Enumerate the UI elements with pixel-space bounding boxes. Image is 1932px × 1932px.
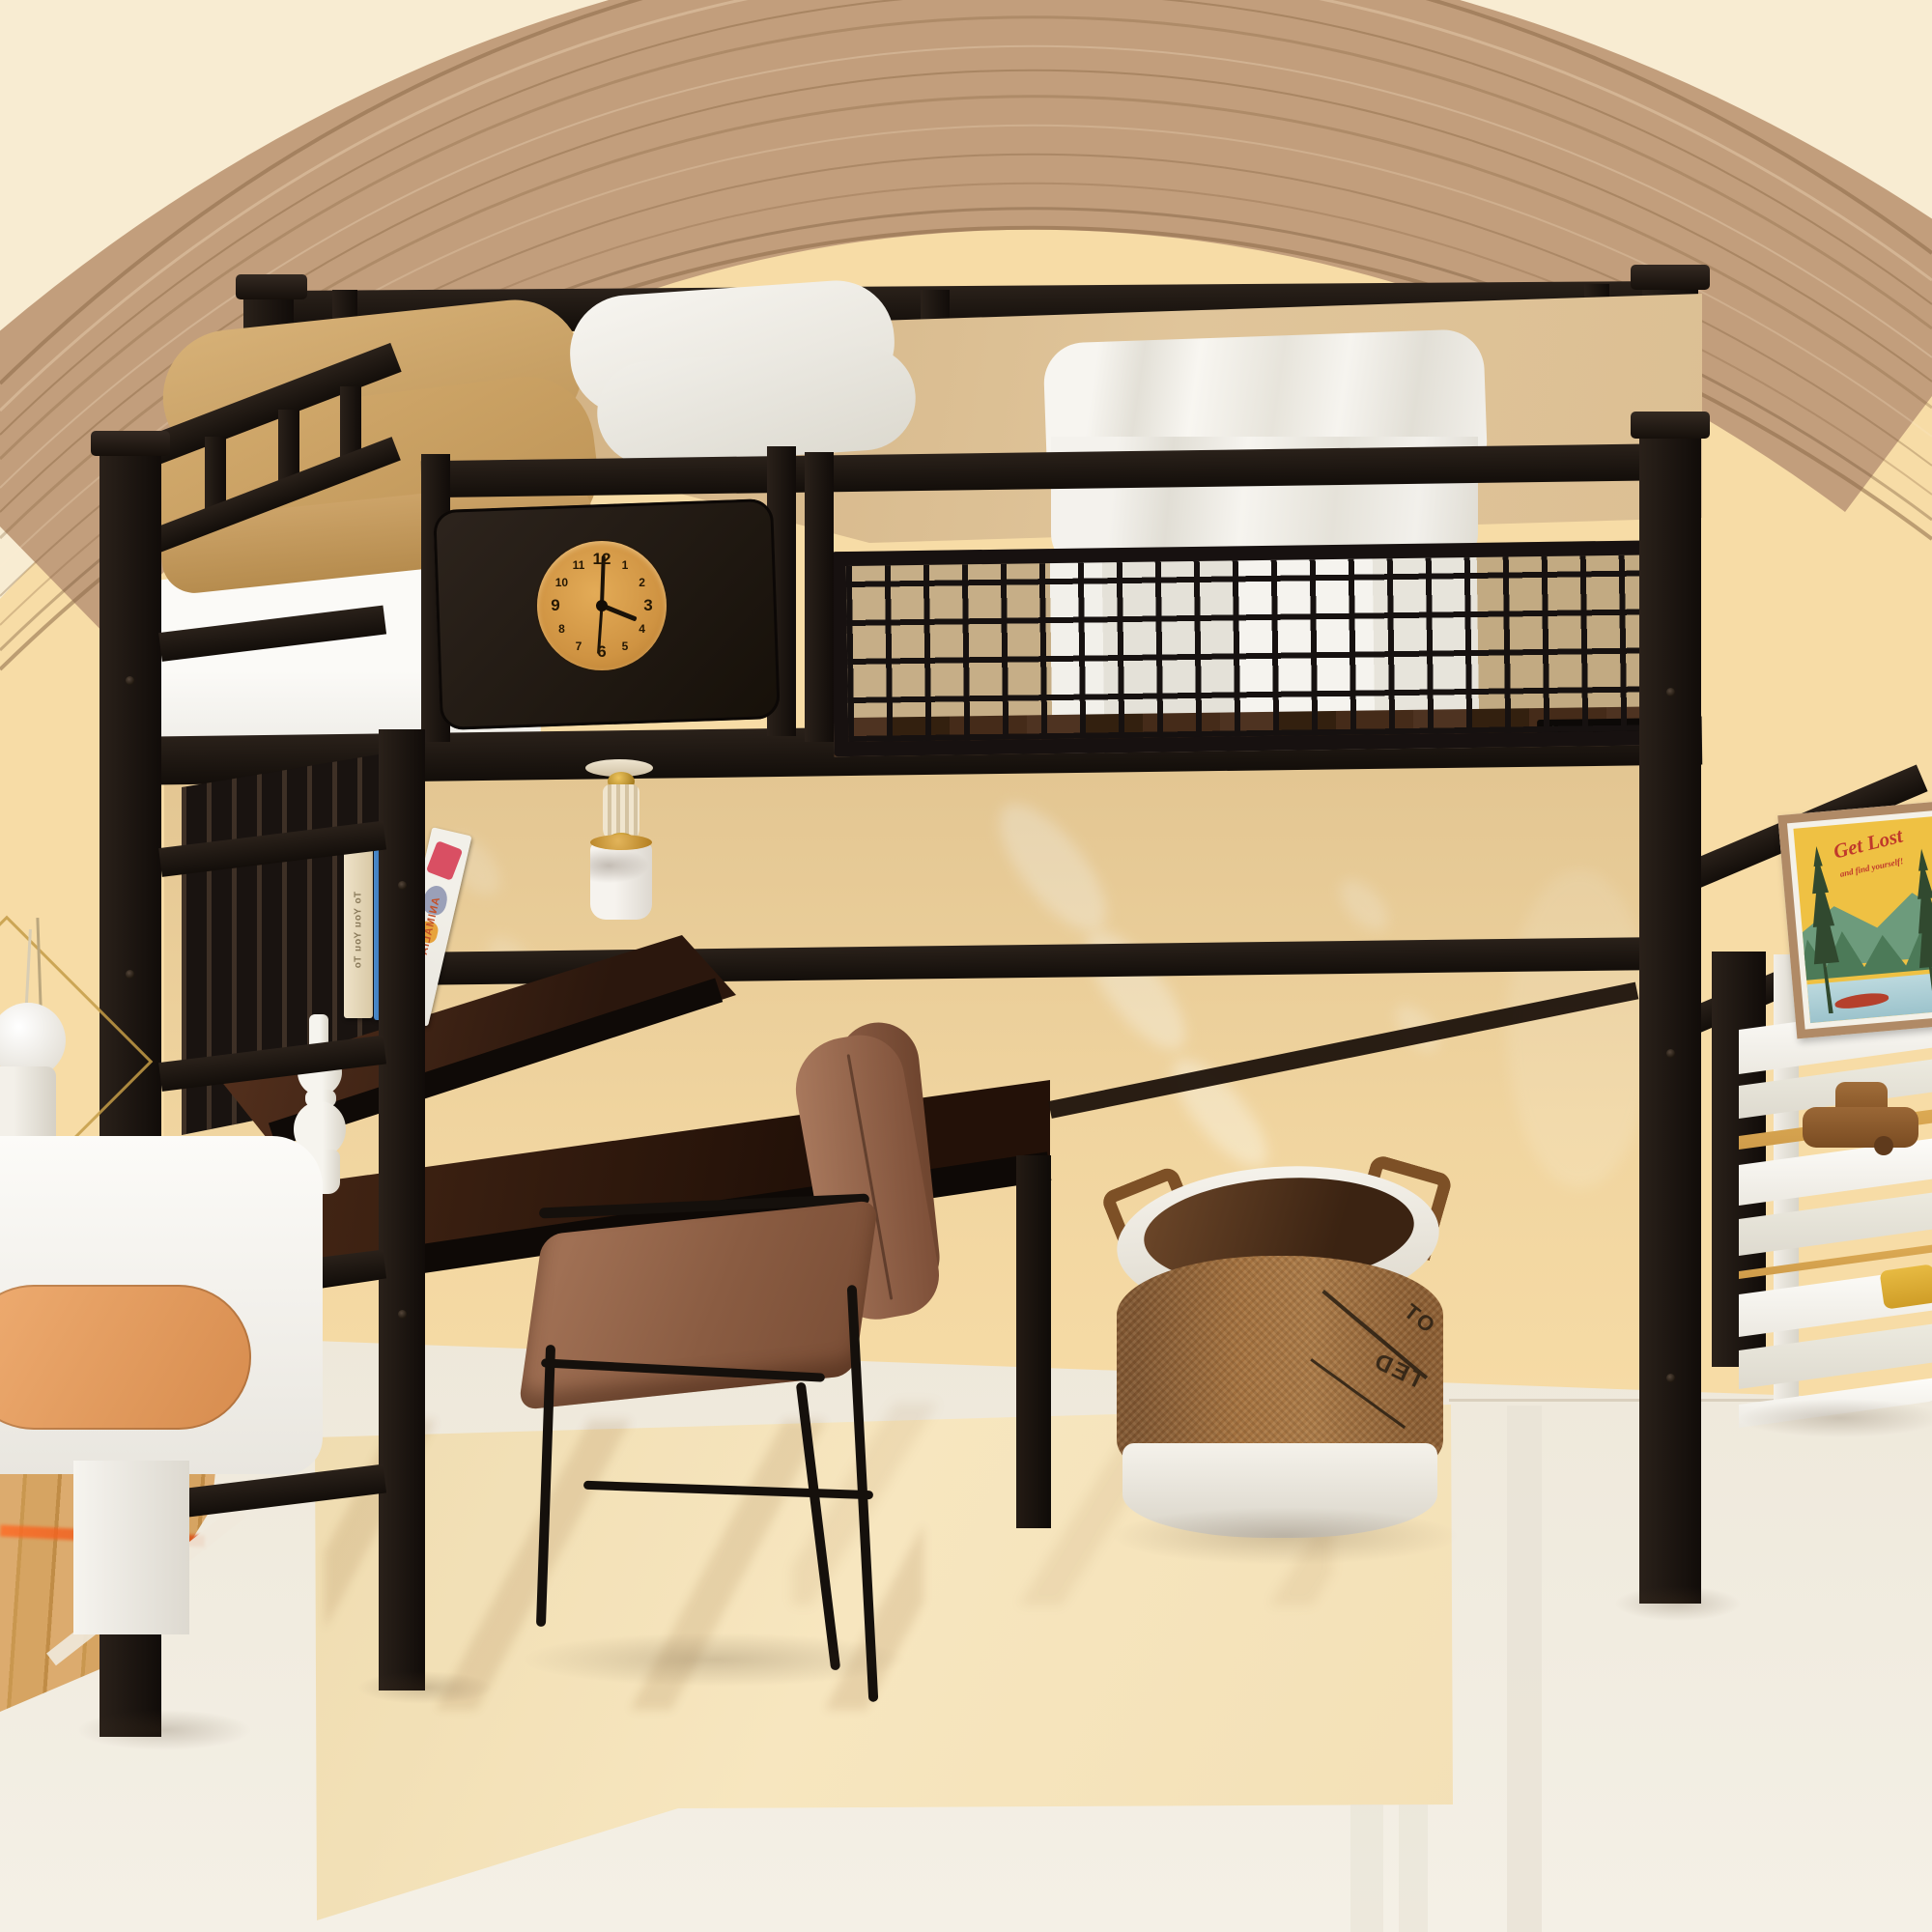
bolt [398, 1310, 407, 1319]
bolt [1666, 1049, 1675, 1058]
front-right-post [1639, 423, 1701, 1604]
clock-numeral: 10 [555, 576, 568, 589]
toy-car-wheel [1874, 1136, 1893, 1155]
post-cap [1631, 265, 1710, 290]
post-cap [91, 431, 170, 456]
left-end-slat [340, 386, 361, 458]
stamp-text: OT [1398, 1297, 1439, 1338]
clock-numeral: 2 [639, 576, 645, 589]
wire-mesh [832, 540, 1696, 756]
clock-numeral: 6 [597, 642, 606, 662]
shadow [522, 1633, 908, 1687]
yellow-toy [1879, 1264, 1932, 1309]
book: To You You To [344, 842, 373, 1018]
shadow [1615, 1586, 1741, 1621]
floor-stripe [1350, 1804, 1383, 1932]
framed-poster: Get Lost and find yourself! [1777, 801, 1932, 1039]
bolt [1666, 1374, 1675, 1382]
post-cap [236, 274, 307, 299]
bolt [126, 676, 134, 685]
mesh-guardrail [832, 540, 1696, 756]
desk-leg [1016, 1155, 1051, 1528]
pendant-lamp-gold-top [590, 835, 652, 850]
book-spine-title: To You You To [344, 842, 373, 1018]
shadow [77, 1710, 251, 1750]
clock-numeral: 8 [558, 622, 565, 636]
shadow [1111, 1507, 1459, 1565]
clock-numeral: 7 [576, 639, 582, 653]
clock-numeral: 9 [551, 596, 559, 615]
floor-stripe [1399, 1804, 1428, 1932]
left-end-slat [205, 437, 226, 510]
bolt [1666, 688, 1675, 696]
pendant-lamp-marble-body [590, 842, 652, 920]
white-pillow [594, 343, 920, 469]
clock-numeral: 12 [593, 550, 611, 569]
poster-art: Get Lost and find yourself! [1793, 816, 1932, 1023]
clock-numeral: 11 [573, 558, 585, 572]
clock-numeral: 1 [622, 558, 629, 572]
nightstand-drawer[interactable] [0, 1285, 251, 1430]
clock-hub [596, 600, 608, 611]
toy-car[interactable] [1803, 1107, 1918, 1148]
guardrail-post [805, 452, 834, 742]
wall-clock: 121234567891011 [537, 541, 667, 670]
nightstand-leg [73, 1461, 189, 1634]
clock-numeral: 5 [622, 639, 629, 653]
floor-stripe [1507, 1406, 1542, 1932]
bolt [126, 970, 134, 979]
ladder-right-rail [379, 729, 425, 1690]
room-scene: 121234567891011 To You You To The book o… [0, 0, 1932, 1932]
shadow [1739, 1399, 1932, 1437]
bolt [398, 881, 407, 890]
clock-numeral: 3 [643, 596, 652, 615]
shadow [357, 1671, 493, 1704]
post-cap [1631, 412, 1710, 439]
clock-numeral: 4 [639, 622, 645, 636]
